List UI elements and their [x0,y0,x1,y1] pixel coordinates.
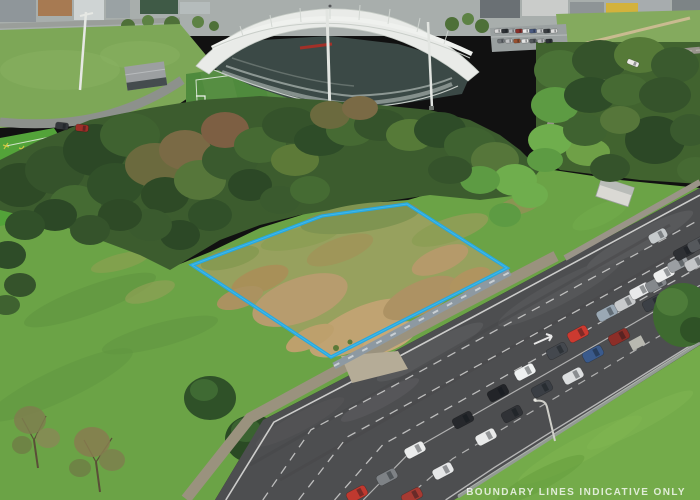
aerial-photo-canvas: BOUNDARY LINES INDICATIVE ONLY [0,0,700,500]
vehicle-parking-lot-cars [522,29,529,33]
vehicle-parking-lot-cars [494,29,501,33]
vehicle-parking-lot-cars [515,29,522,33]
boundary-disclaimer-text: BOUNDARY LINES INDICATIVE ONLY [466,487,686,498]
vehicle-parkland-cars [75,124,89,132]
vehicle-parking-lot-cars [537,39,544,43]
aerial-photo: BOUNDARY LINES INDICATIVE ONLY [0,0,700,500]
vehicle-parking-lot-cars [505,39,512,43]
vehicle-parking-lot-cars [497,39,504,43]
vehicle-parkland-cars [55,122,69,130]
vehicle-parking-lot-cars [529,29,536,33]
vehicle-parking-lot-cars [513,39,520,43]
vehicle-parking-lot-cars [550,29,557,33]
vehicle-parking-lot-cars [501,29,508,33]
vehicle-parking-lot-cars [521,39,528,43]
vehicle-parking-lot-cars [545,39,552,43]
vehicle-parking-lot-cars [508,29,515,33]
vehicle-parking-lot-cars [543,29,550,33]
vehicle-parking-lot-cars [536,29,543,33]
vehicle-parking-lot-cars [529,39,536,43]
